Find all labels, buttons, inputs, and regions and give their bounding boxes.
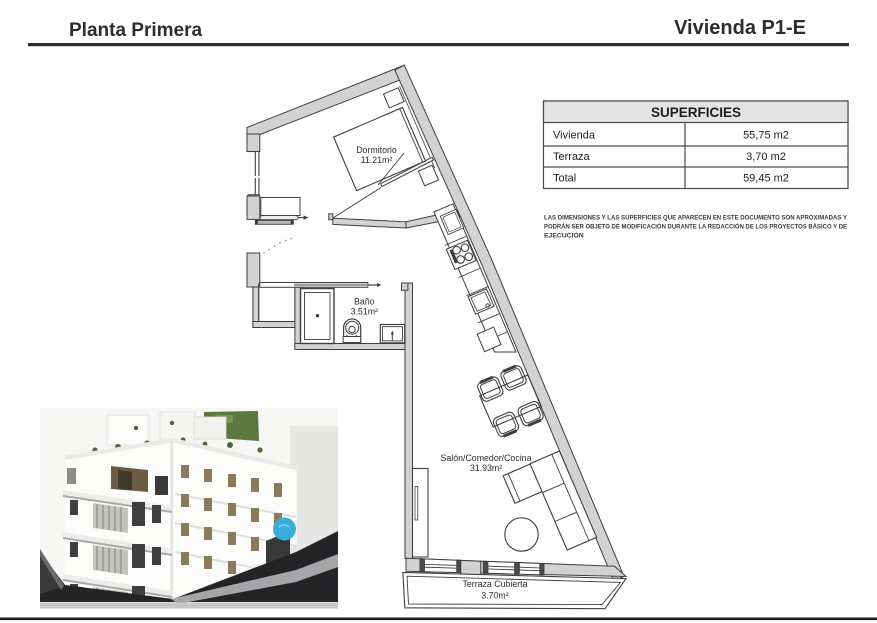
svg-text:Planta Primera: Planta Primera <box>69 20 202 41</box>
svg-text:3.70m²: 3.70m² <box>481 591 508 601</box>
svg-text:EJECUCIÓN: EJECUCIÓN <box>544 231 584 240</box>
svg-text:55,75 m2: 55,75 m2 <box>743 130 789 142</box>
svg-text:Vivienda: Vivienda <box>553 130 596 142</box>
svg-text:Vivienda P1-E: Vivienda P1-E <box>674 17 806 39</box>
svg-text:Terraza Cubierta: Terraza Cubierta <box>462 579 527 589</box>
svg-text:Salón/Comedor/Cocina: Salón/Comedor/Cocina <box>441 453 532 463</box>
svg-text:PODRÁN SER OBJETO DE MODIFICAC: PODRÁN SER OBJETO DE MODIFICACIÓN DURANT… <box>544 222 847 231</box>
svg-text:31.93m²: 31.93m² <box>470 463 502 473</box>
svg-text:11.21m²: 11.21m² <box>361 155 393 165</box>
svg-text:Baño: Baño <box>354 297 375 307</box>
svg-text:Total: Total <box>553 173 576 185</box>
svg-text:Terraza: Terraza <box>553 151 591 163</box>
svg-text:3,70 m2: 3,70 m2 <box>746 151 786 163</box>
svg-text:Dormitorio: Dormitorio <box>356 145 397 155</box>
svg-text:LAS DIMENSIONES Y LAS SUPERFIC: LAS DIMENSIONES Y LAS SUPERFICIES QUE AP… <box>544 215 847 222</box>
svg-text:3.51m²: 3.51m² <box>351 306 378 316</box>
svg-text:59,45 m2: 59,45 m2 <box>743 173 789 185</box>
svg-text:SUPERFICIES: SUPERFICIES <box>651 105 741 120</box>
